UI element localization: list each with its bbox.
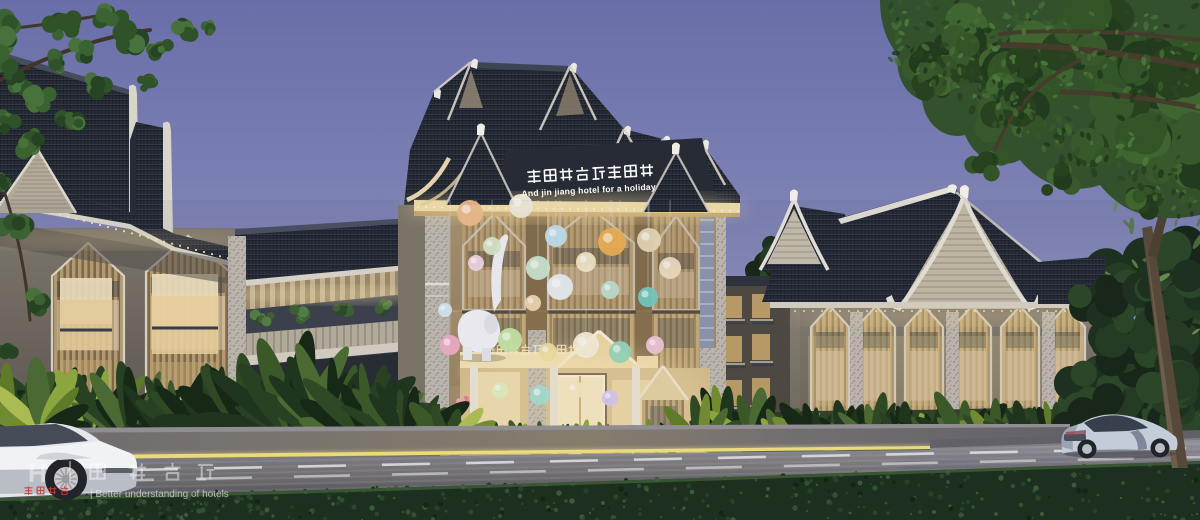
svg-text:H: H bbox=[28, 458, 47, 488]
svg-text:| Better understanding of hote: | Better understanding of hotels bbox=[90, 489, 229, 500]
